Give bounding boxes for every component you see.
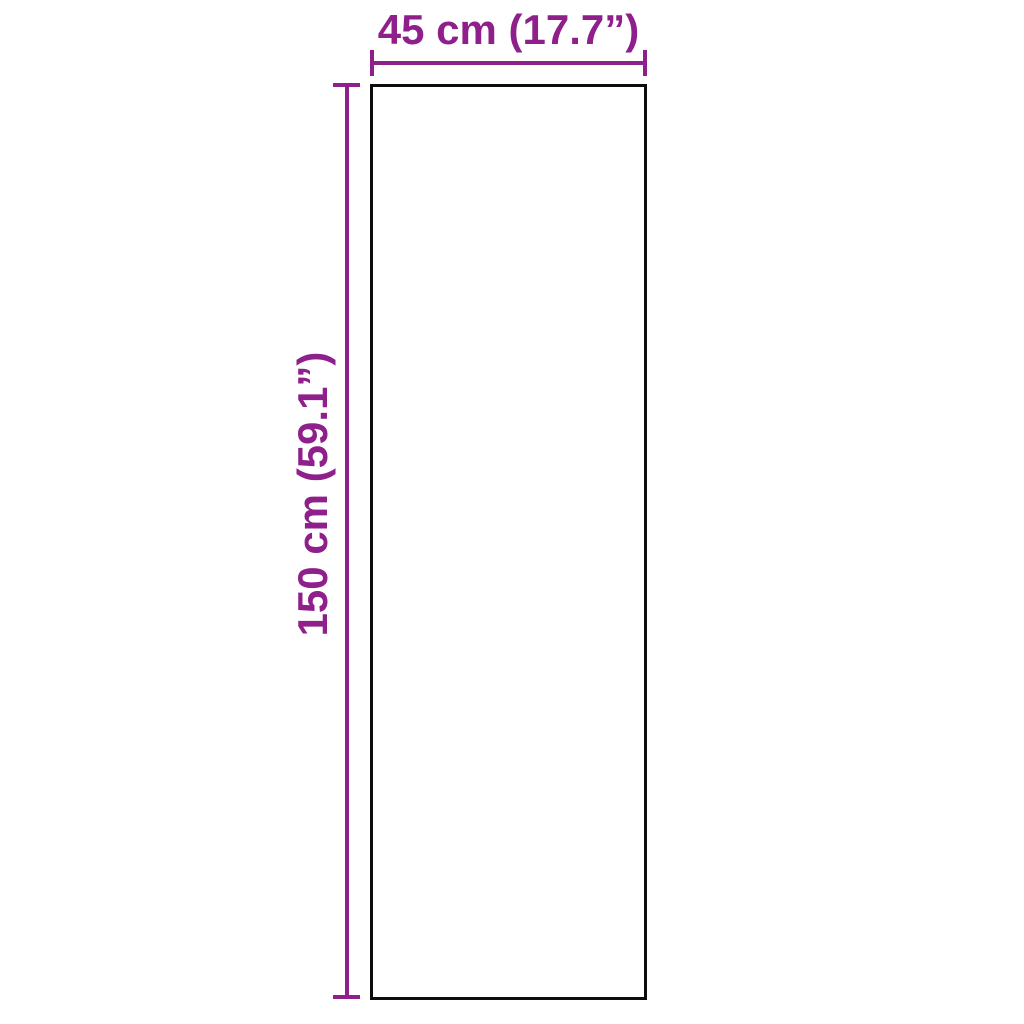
dimension-diagram: 45 cm (17.7”) 150 cm (59.1”) xyxy=(0,0,1024,1024)
width-dimension-label: 45 cm (17.7”) xyxy=(370,6,647,54)
height-dimension-label: 150 cm (59.1”) xyxy=(289,352,337,637)
height-dimension-line xyxy=(345,83,349,999)
height-dimension-tick-bottom xyxy=(333,995,360,999)
height-dimension-tick-top xyxy=(333,83,360,87)
width-dimension-line xyxy=(370,61,647,65)
product-outline xyxy=(370,84,647,1000)
